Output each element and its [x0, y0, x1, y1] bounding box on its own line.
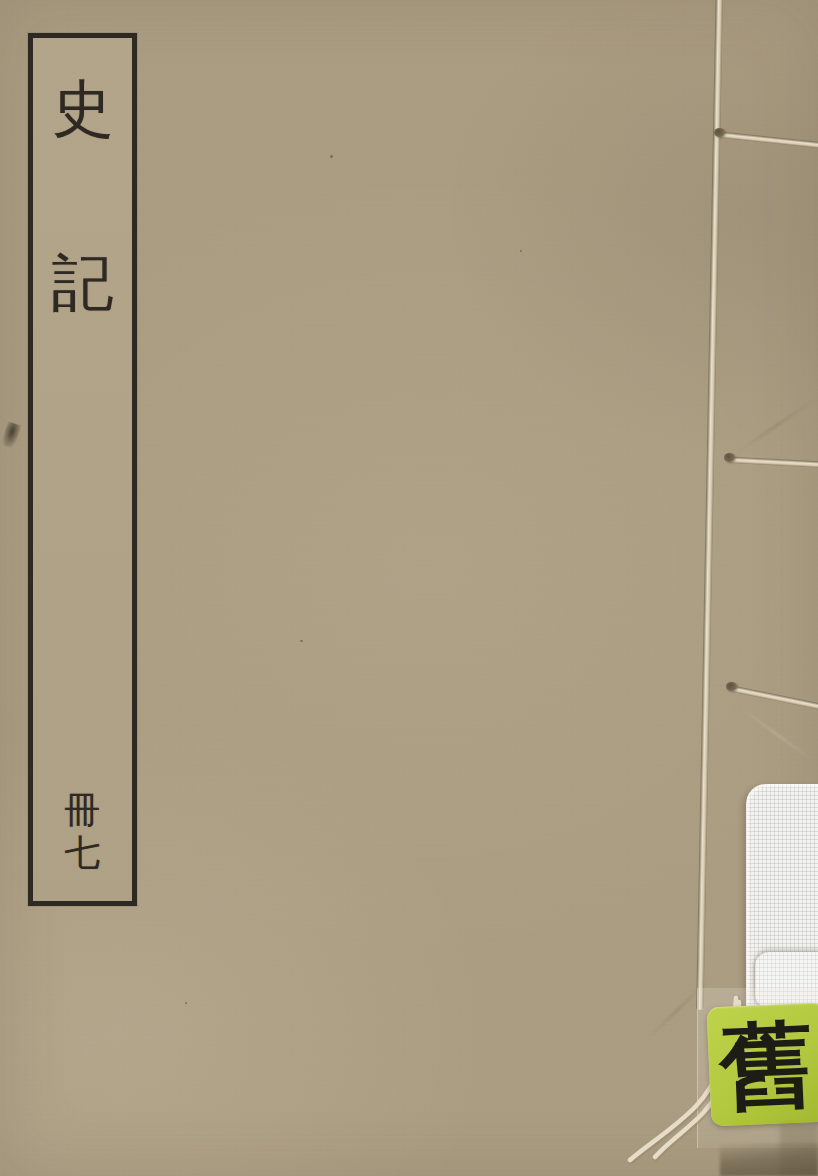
white-cloth-band — [746, 784, 818, 1008]
paper-speck — [330, 155, 333, 158]
stitch-knot — [726, 682, 737, 691]
binding-thread-horizontal-middle — [731, 456, 818, 468]
binding-thread-horizontal-lower — [732, 685, 818, 710]
title-char-ji: 記 — [52, 252, 114, 314]
cover-crease — [734, 396, 818, 454]
volume-char-ce: 冊 — [65, 792, 101, 828]
book-edge-shadow — [720, 1143, 818, 1176]
volume-char-qi: 七 — [65, 835, 101, 871]
paper-speck — [300, 640, 303, 642]
ink-smudge — [1, 421, 22, 448]
title-label: 史 記 冊 七 — [28, 33, 137, 906]
cover-crease — [741, 708, 813, 761]
binding-thread-horizontal-top — [722, 131, 818, 148]
book-cover-photo: 史 記 冊 七 舊 — [0, 0, 818, 1176]
binding-thread-vertical — [695, 0, 723, 1010]
title-char-shi: 史 — [52, 78, 114, 140]
stitch-knot — [724, 453, 735, 462]
paper-speck — [185, 1002, 187, 1004]
old-label-sticker: 舊 — [706, 1002, 818, 1126]
paper-speck — [520, 250, 522, 252]
stitch-knot — [714, 128, 725, 137]
sticker-char-jiu: 舊 — [717, 1017, 815, 1115]
